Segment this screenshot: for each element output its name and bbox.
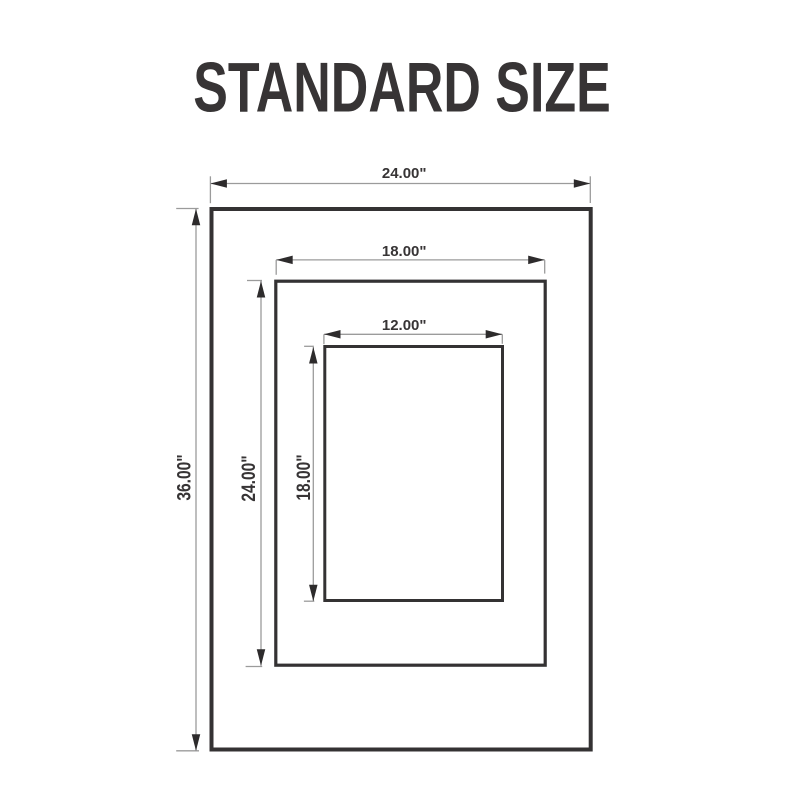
svg-text:STANDARD SIZE: STANDARD SIZE (193, 49, 611, 127)
svg-text:18.00": 18.00" (293, 454, 315, 500)
svg-text:24.00": 24.00" (382, 165, 427, 182)
svg-text:24.00": 24.00" (238, 455, 260, 501)
svg-text:36.00": 36.00" (173, 454, 195, 500)
svg-text:18.00": 18.00" (382, 243, 427, 260)
svg-text:12.00": 12.00" (382, 317, 427, 334)
